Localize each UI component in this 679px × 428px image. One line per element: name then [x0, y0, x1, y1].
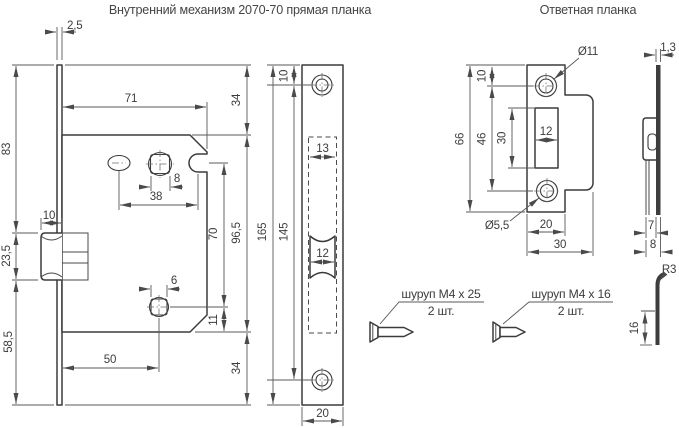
strike-opening [535, 108, 558, 168]
screw-label: шуруп M4 x 16 [531, 287, 611, 301]
dim-label: 10 [477, 70, 489, 82]
callout-bend-radius: R3 [659, 264, 677, 282]
tab-section [656, 273, 665, 346]
dim-label: 10 [279, 70, 291, 82]
dim-label: 12 [316, 248, 328, 260]
dim-label: 12 [540, 126, 552, 138]
dim-label: 13 [316, 143, 328, 155]
screw-shaft [378, 328, 413, 337]
dim-label: 2,5 [67, 20, 82, 32]
right-view-title: Ответная планка [540, 3, 637, 17]
dim-label: 11 [208, 314, 220, 326]
screw-head [493, 322, 500, 342]
dim-label: 145 [279, 223, 291, 242]
lock-mechanism-view: 2,5 83 23,5 58,5 10 71 34 [1, 20, 251, 405]
dim-faceplate-thickness: 2,5 [45, 20, 82, 60]
dim-label: 30 [497, 132, 509, 144]
screw-qty: 2 шт. [558, 304, 585, 318]
dim-label: Ø5,5 [485, 220, 509, 232]
screw-head [370, 322, 378, 342]
screw-m4x16: шуруп M4 x 16 2 шт. [493, 287, 613, 342]
drawing-sheet: Внутренний механизм 2070-70 прямая планк… [0, 0, 679, 428]
screw-label: шуруп M4 x 25 [401, 287, 481, 301]
strike-tab-detail: 16 R3 [629, 264, 676, 345]
screw-shaft [500, 328, 525, 337]
dim-label: 38 [150, 191, 162, 203]
dim-label: 7 [648, 220, 654, 232]
dim-tab-length: 16 [629, 313, 652, 346]
strike-profile-view: 1,3 7 8 [637, 42, 676, 257]
dim-label: 83 [1, 143, 13, 155]
dim-label: 70 [208, 228, 220, 240]
dim-label: 8 [174, 173, 180, 185]
dim-plate-width: 20 [302, 407, 343, 426]
tab-plane-lines [646, 160, 649, 215]
dim-label: 34 [231, 93, 243, 106]
dim-label: 46 [477, 133, 489, 145]
dim-label: 96,5 [231, 222, 243, 244]
dim-label: 8 [650, 239, 656, 251]
ext [57, 27, 62, 60]
left-view-title: Внутренний механизм 2070-70 прямая планк… [109, 3, 371, 17]
dim-label: 10 [43, 210, 55, 222]
dim-label: 6 [171, 275, 177, 287]
dim-label: R3 [662, 264, 676, 276]
dim-label: 30 [554, 239, 566, 251]
screw-m4x25: шуруп M4 x 25 2 шт. [370, 287, 484, 342]
dim-strike-heights: 66 10 46 30 [455, 65, 535, 212]
dim-label: Ø11 [578, 46, 598, 58]
faceplate-front-view: 13 12 10 145 165 20 [257, 65, 343, 426]
dim-label: 23,5 [1, 245, 13, 267]
dim-label: 71 [125, 93, 137, 105]
dim-label: 16 [629, 322, 641, 334]
dim-label: 58,5 [3, 331, 15, 353]
dim-label: 50 [104, 354, 116, 366]
dim-label: 66 [455, 133, 467, 145]
dim-label: 34 [231, 361, 243, 374]
dim-label: 20 [540, 219, 552, 231]
technical-drawing: Внутренний механизм 2070-70 прямая планк… [0, 0, 679, 428]
dim-label: 165 [257, 223, 269, 242]
dim-label: 1,3 [660, 42, 675, 54]
strike-dimple [643, 118, 656, 160]
screw-qty: 2 шт. [428, 304, 455, 318]
strike-plate-view: Ø11 Ø5,5 66 10 46 30 12 20 30 [455, 46, 599, 256]
dim-label: 20 [316, 408, 328, 420]
dim-plate-thickness: 1,3 [644, 42, 676, 62]
